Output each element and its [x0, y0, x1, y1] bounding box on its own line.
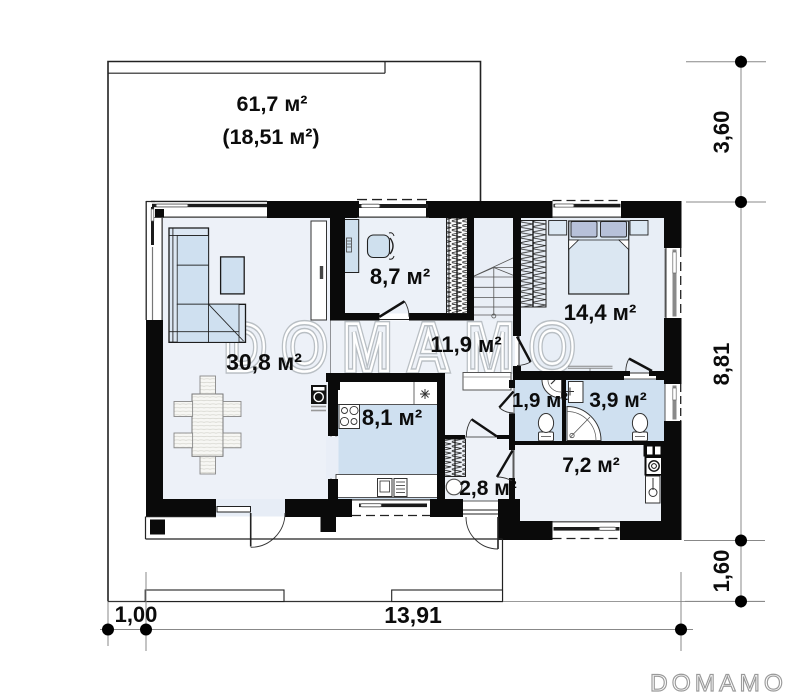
svg-text:2,8 м²: 2,8 м² — [459, 477, 517, 500]
svg-text:(18,51 м²): (18,51 м²) — [222, 125, 319, 149]
svg-text:3,60: 3,60 — [709, 111, 734, 154]
svg-text:13,91: 13,91 — [384, 602, 442, 628]
svg-text:1,9 м²: 1,9 м² — [512, 389, 568, 412]
svg-text:1,60: 1,60 — [709, 550, 734, 593]
svg-text:30,8 м²: 30,8 м² — [226, 349, 302, 375]
svg-text:61,7 м²: 61,7 м² — [237, 92, 308, 116]
svg-text:8,1 м²: 8,1 м² — [362, 405, 422, 430]
svg-text:8,7 м²: 8,7 м² — [370, 264, 430, 289]
svg-text:3,9 м²: 3,9 м² — [589, 389, 647, 412]
svg-text:11,9 м²: 11,9 м² — [430, 332, 501, 357]
svg-text:14,4 м²: 14,4 м² — [564, 300, 637, 325]
svg-text:DOMAMO: DOMAMO — [650, 670, 787, 697]
svg-text:1,00: 1,00 — [115, 602, 158, 627]
svg-text:7,2 м²: 7,2 м² — [562, 454, 620, 477]
svg-text:8,81: 8,81 — [709, 343, 734, 386]
